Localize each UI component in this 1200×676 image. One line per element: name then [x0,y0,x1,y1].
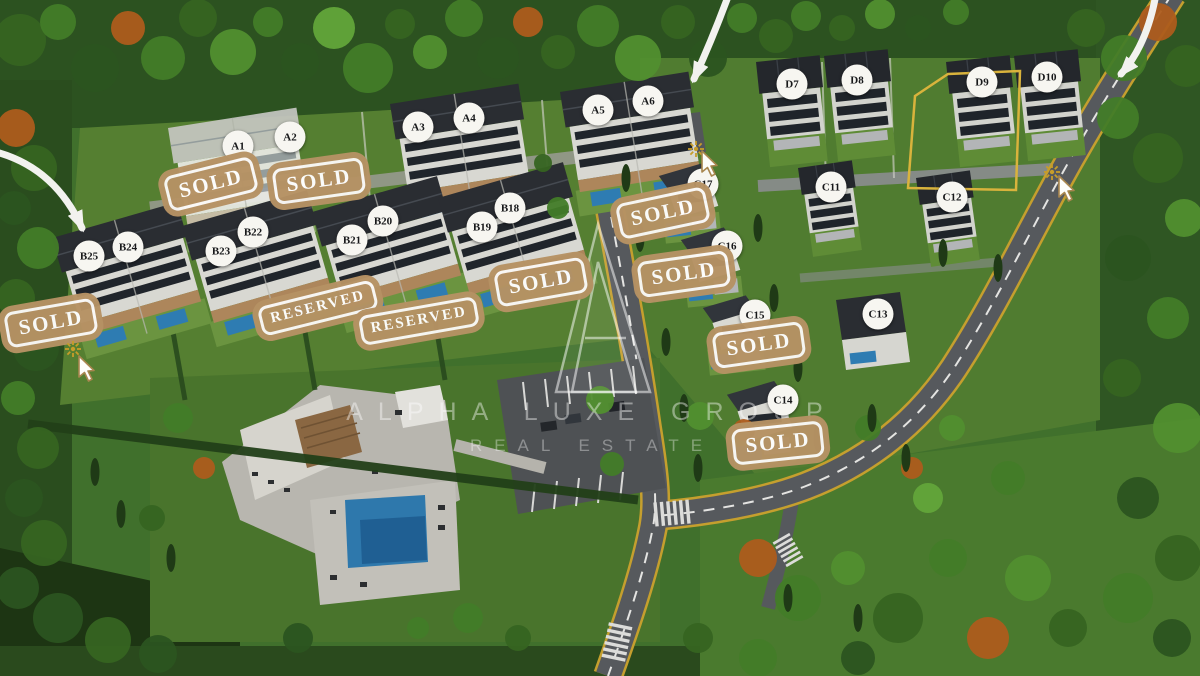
status-stamp-sold-2: SOLD [271,157,366,205]
site-plan-screenshot: ALPHA LUXE GROUP REAL ESTATE A1A2A3A4A5A… [0,0,1200,676]
status-stamps: SOLDSOLDSOLDRESERVEDRESERVEDSOLDSOLDSOLD… [0,0,1200,676]
status-stamp-sold-7: SOLD [615,186,712,240]
status-stamp-sold-6: SOLD [493,256,589,307]
status-stamp-sold-10: SOLD [731,420,825,465]
status-stamp-sold-3: SOLD [3,297,99,348]
status-stamp-sold-8: SOLD [636,250,731,298]
status-stamp-sold-9: SOLD [711,321,806,369]
status-stamp-sold-1: SOLD [162,156,259,213]
